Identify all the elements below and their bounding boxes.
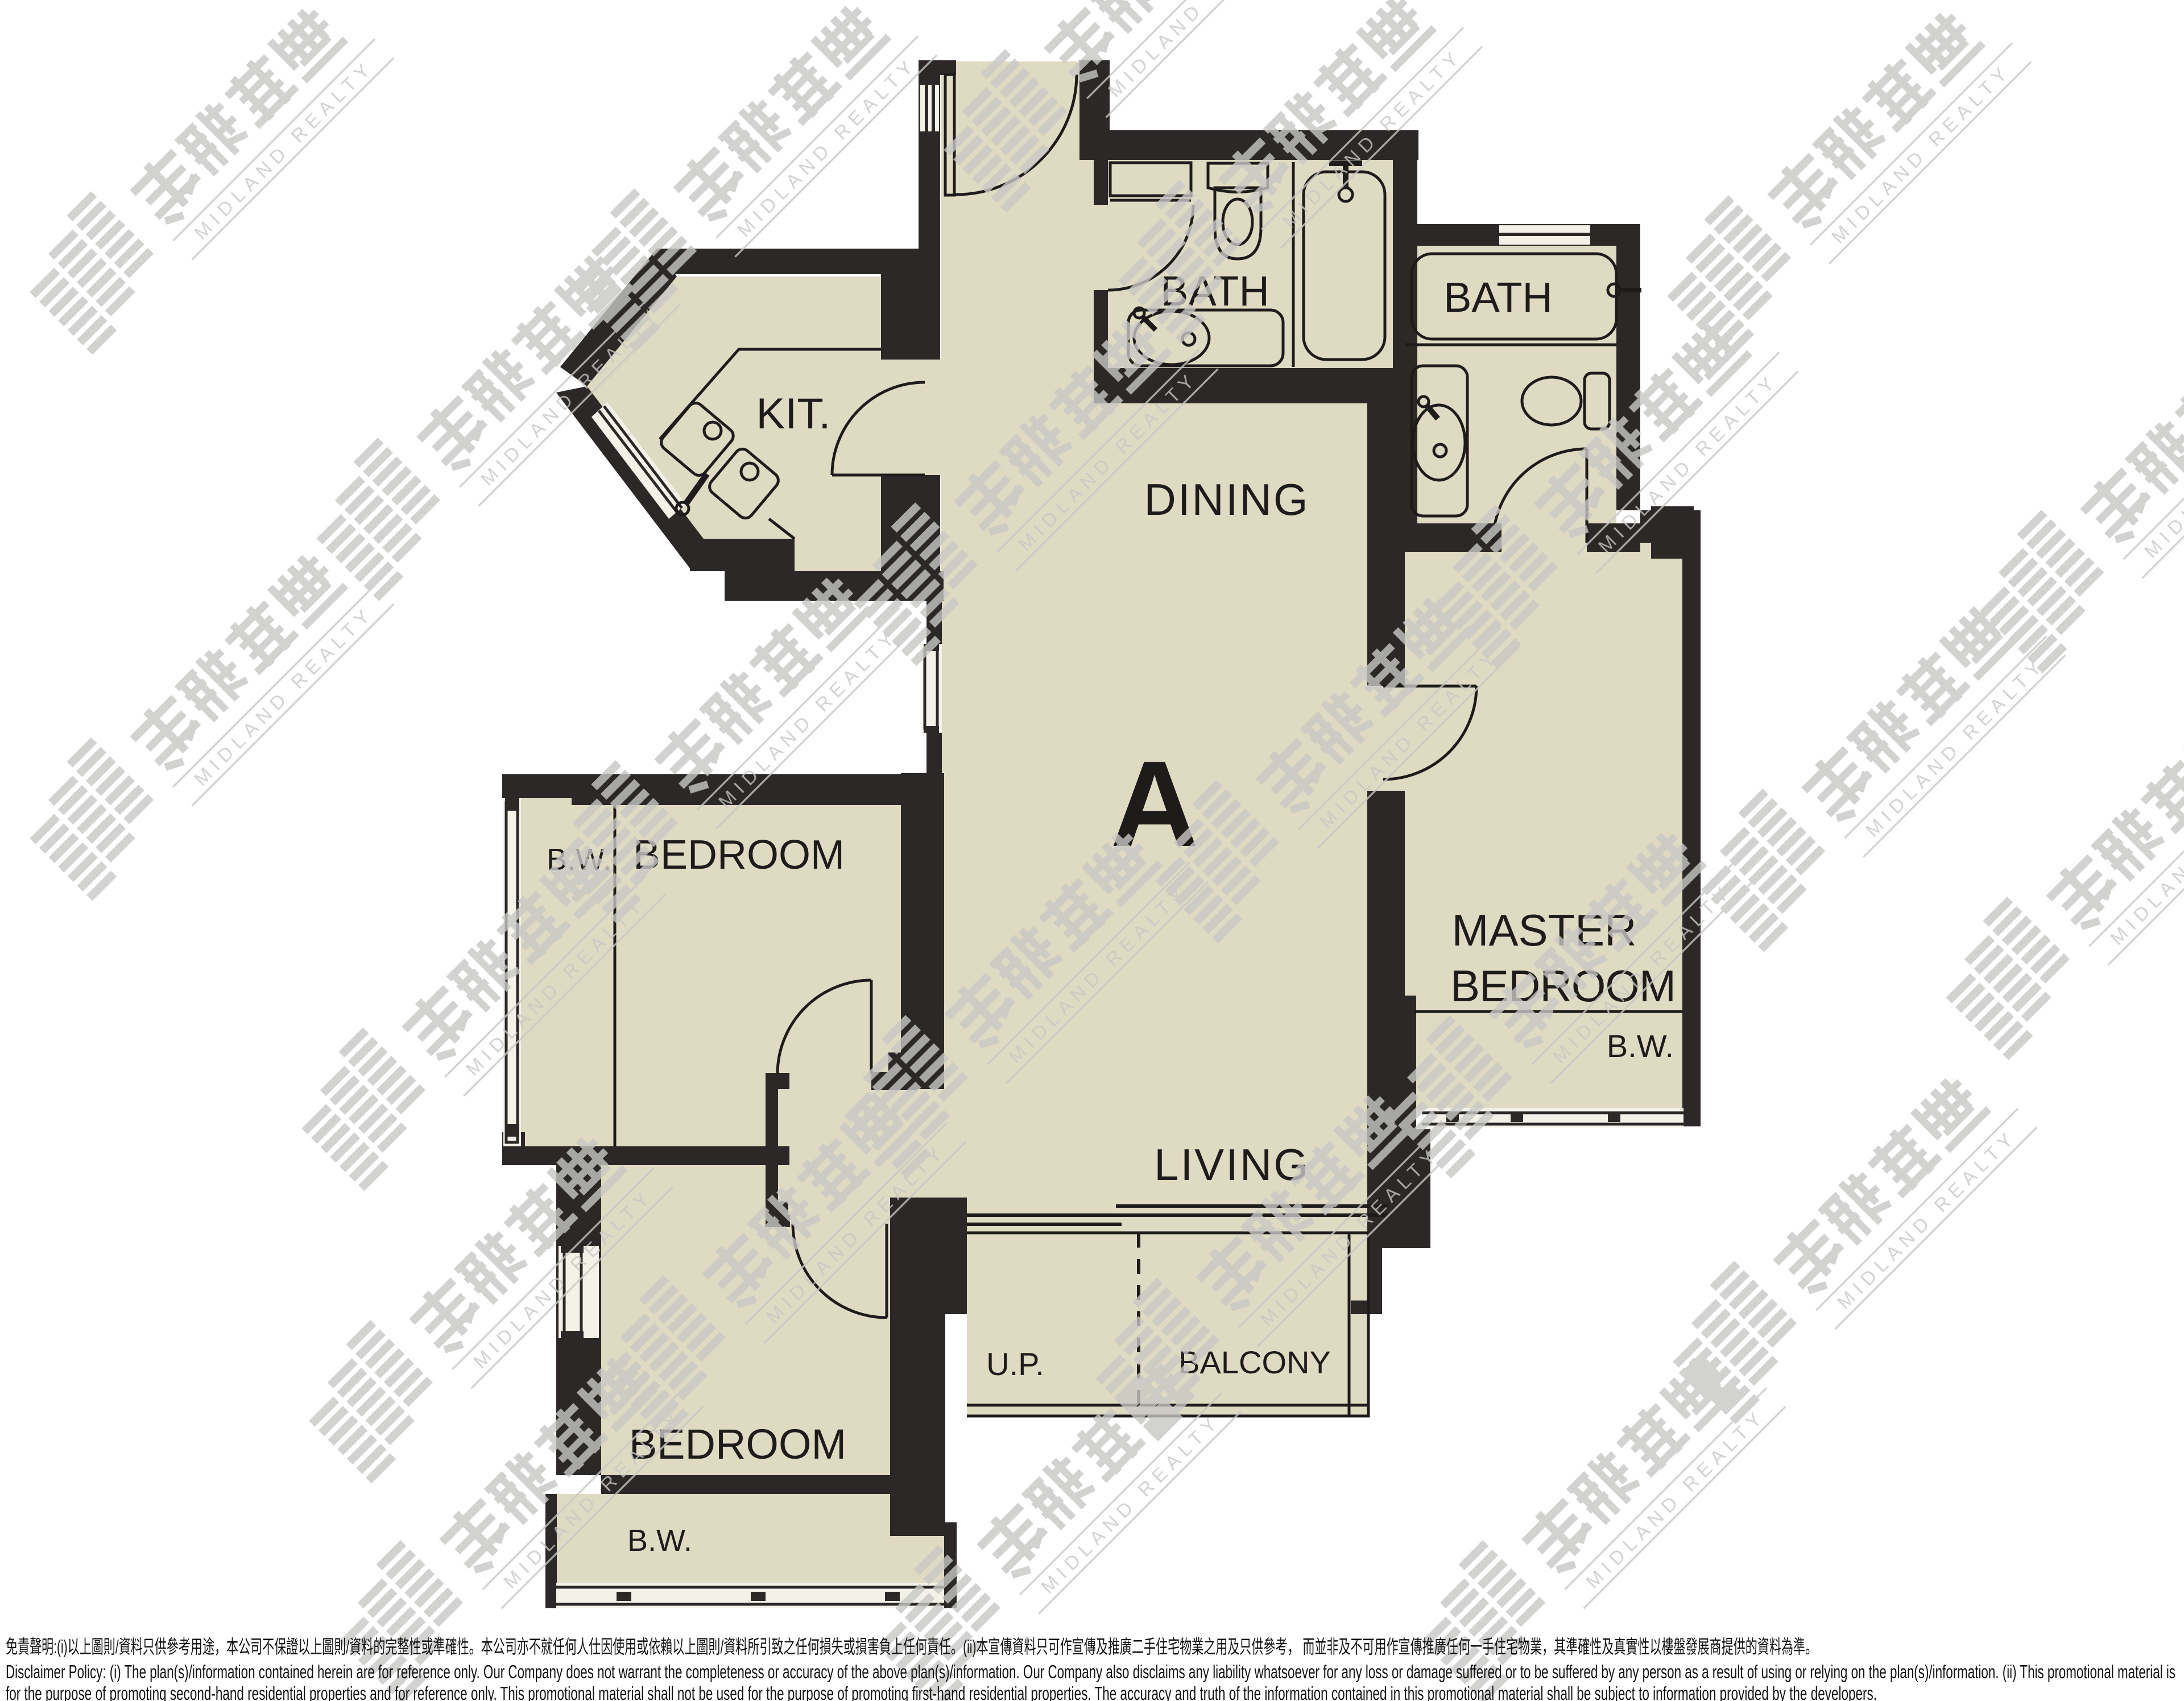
svg-text:BATH: BATH [1443, 274, 1553, 321]
svg-text:免責聲明:(i)以上圖則/資料只供參考用途，本公司不保證以上: 免責聲明:(i)以上圖則/資料只供參考用途，本公司不保證以上圖則/資料的完整性或… [6, 1636, 1817, 1657]
svg-text:KIT.: KIT. [756, 390, 831, 438]
svg-text:B.W.: B.W. [1607, 1028, 1674, 1064]
svg-text:B.W.: B.W. [627, 1524, 692, 1558]
svg-text:LIVING: LIVING [1154, 1139, 1310, 1190]
svg-text:BEDROOM: BEDROOM [633, 832, 845, 878]
svg-text:DINING: DINING [1144, 474, 1310, 525]
svg-text:Disclaimer Policy: (i) The pla: Disclaimer Policy: (i) The plan(s)/infor… [6, 1661, 2175, 1682]
svg-text:U.P.: U.P. [986, 1346, 1044, 1382]
svg-text:for the purpose of promoting s: for the purpose of promoting second-hand… [6, 1683, 1877, 1701]
